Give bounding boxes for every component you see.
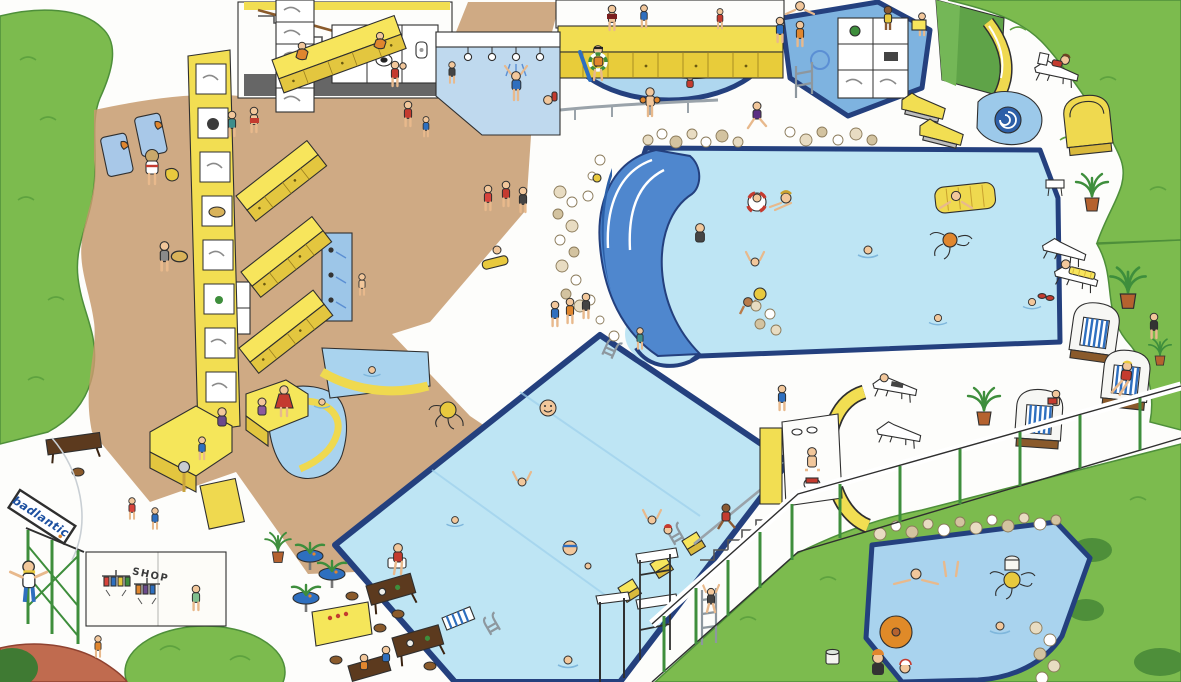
boy-standing	[778, 385, 786, 410]
air-mattress	[934, 182, 996, 214]
urinal	[416, 42, 427, 58]
boy-standing-water	[696, 224, 705, 242]
clerk	[258, 398, 266, 415]
yellow-loungers	[899, 91, 965, 149]
boy-at-rim	[786, 2, 814, 14]
boy	[551, 301, 559, 326]
table-entry	[46, 432, 103, 463]
basket	[209, 207, 225, 217]
bistro-counter	[312, 602, 372, 646]
whirl-spiral	[995, 107, 1021, 133]
beach-chair-yellow	[1062, 93, 1114, 155]
potted-palm	[968, 388, 1000, 425]
potted-palm	[1076, 174, 1108, 211]
guest-seated	[382, 646, 390, 661]
swim-channel	[322, 348, 430, 398]
receptionist	[218, 408, 226, 426]
runner-boy	[748, 102, 766, 128]
deck-edge	[52, 438, 82, 560]
shop: SHOP	[86, 552, 226, 626]
swimmer-red-cap	[664, 524, 672, 534]
rock-cluster-wave-left	[553, 186, 586, 312]
kid-running	[129, 498, 135, 519]
pool-complex-illustration: badlantic SHOP	[0, 0, 1181, 682]
path-bottom-left	[0, 644, 127, 682]
kid-running	[152, 508, 158, 529]
stool	[912, 20, 926, 30]
badlantic-pool-map: badlantic SHOP	[0, 0, 1181, 682]
plant-table	[292, 585, 320, 612]
wave-pool	[583, 148, 1060, 366]
bag	[166, 168, 179, 181]
swimmer	[540, 400, 556, 416]
boy	[582, 293, 590, 318]
boy	[566, 298, 574, 323]
rock-cluster-wave-top	[643, 127, 877, 148]
book	[1038, 53, 1049, 66]
shampoo-bottle	[552, 92, 557, 101]
baby-in-swim-ring	[748, 193, 766, 211]
ball	[593, 174, 601, 182]
grass-hill-bottom-left	[125, 626, 285, 682]
guest-seated	[360, 654, 368, 669]
bucket	[826, 649, 839, 664]
bather-orange-cap	[872, 649, 884, 675]
kid-running	[95, 636, 101, 657]
keg	[1005, 556, 1019, 570]
railing	[560, 100, 718, 110]
storage-shelf	[838, 18, 908, 98]
kid-striped-cap	[900, 660, 911, 674]
loungers-mid	[871, 372, 1000, 449]
